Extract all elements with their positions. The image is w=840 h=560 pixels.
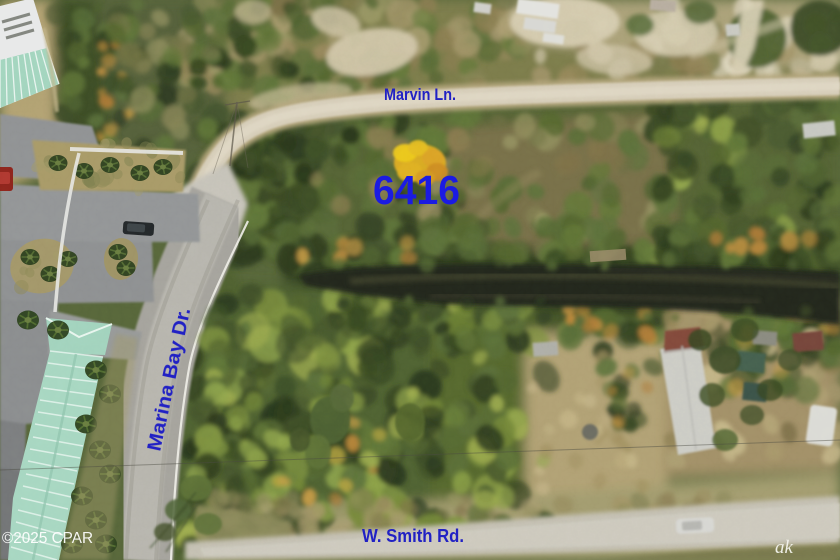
svg-text:W. Smith Rd.: W. Smith Rd. [362,525,464,546]
svg-text:©2025 CPAR: ©2025 CPAR [2,530,93,547]
svg-text:6416: 6416 [373,167,460,213]
svg-text:Marvin Ln.: Marvin Ln. [384,85,456,104]
svg-text:ak: ak [775,537,794,558]
